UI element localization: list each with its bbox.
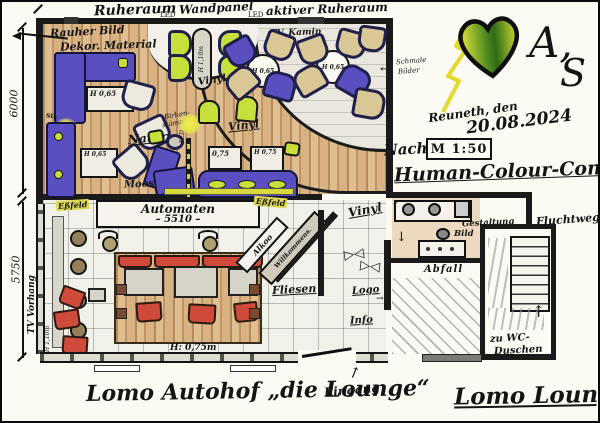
side-box: [249, 284, 260, 295]
left-arrow-icon: ←: [379, 64, 392, 75]
radiator: [230, 365, 276, 372]
sink-dot: [426, 247, 430, 251]
burner: [402, 203, 415, 216]
red-chair: [187, 303, 216, 324]
radiator: [94, 365, 140, 372]
wall-stair-left: [480, 224, 485, 360]
label-bar-height: H 1,10m: [45, 318, 51, 352]
up-arrow-icon: ↑: [390, 200, 401, 215]
stool: [202, 236, 218, 252]
heart-icon: [451, 10, 530, 87]
label-stl: StL: [46, 114, 57, 120]
faucet: [436, 228, 450, 240]
chair: [168, 54, 192, 82]
concept-title: Human-Colour-Concept: [394, 158, 600, 186]
label-aktiver-ruheraum: aktiver Ruheraum: [266, 1, 388, 17]
led-strip: [164, 188, 294, 195]
side-box: [249, 308, 260, 319]
label-wandpanel: Wandpanel: [179, 0, 254, 16]
down-arrow-icon: ↓: [396, 230, 407, 245]
dimension-5750: 5750: [11, 250, 22, 290]
scale-box: M 1:50: [426, 138, 492, 160]
sofa-l-side: [54, 52, 86, 124]
bench-cushion-red: [118, 255, 152, 268]
wall-stair-right: [551, 224, 556, 360]
wall-left-upper: [36, 18, 43, 204]
side-box: [116, 284, 127, 295]
label-fliesen: Fliesen: [272, 283, 317, 296]
label-abfall: Abfall: [424, 265, 463, 275]
label-vinyl-mid: Vinyl: [228, 118, 260, 132]
stool: [102, 236, 118, 252]
north-tick: [33, 4, 43, 14]
green-seat: [147, 129, 165, 146]
pillow: [54, 132, 63, 141]
dimension-6000: 6000: [9, 84, 20, 124]
staircase: [510, 236, 550, 312]
red-chair: [135, 301, 162, 323]
wall-service-left: [384, 240, 391, 310]
automat-width: – 5510 –: [156, 215, 201, 225]
label-info: Info: [350, 315, 373, 326]
stool: [70, 258, 87, 275]
bowtie-icon: ▷◁: [359, 259, 380, 274]
side-box: [116, 308, 127, 319]
pencil-shading: [488, 308, 544, 330]
plan-title-right: Lomo Lounge: [454, 382, 600, 408]
wall-right-stub: [526, 192, 532, 228]
scale-value: M 1:50: [431, 143, 488, 156]
small-arrow-icon: →: [376, 294, 384, 304]
arch-chair: [198, 100, 220, 124]
wall-service-mid: [390, 258, 482, 263]
pencil-shading: [488, 238, 508, 308]
label-bild: Bild: [454, 230, 474, 239]
wall-stair-top: [480, 224, 556, 229]
label-moos: Moos: [124, 179, 155, 191]
dining-table: [174, 266, 218, 298]
pillow: [118, 58, 128, 68]
label-tv-vorhang: TV Vorhang: [28, 242, 37, 334]
wall-service-bottom: [422, 354, 482, 362]
vending-counter: Automaten – 5510 –: [96, 200, 260, 228]
label-bilder: Bilder: [398, 67, 420, 76]
red-chair: [53, 308, 81, 330]
floorplan-sketch: Ruheraum LED Wandpanel LED aktiver Ruher…: [0, 0, 600, 423]
small-table: [88, 288, 106, 302]
high-table-height: H 1,10m: [199, 46, 205, 72]
wall-corridor-left: [318, 210, 324, 296]
table-h075: H 0,75: [250, 146, 284, 172]
label-wc-1: zu WC-: [490, 333, 530, 345]
label-dekor-material: Dekor. Material: [60, 38, 157, 52]
stool: [70, 230, 87, 247]
burner: [428, 203, 441, 216]
dimension-line-upper: [22, 28, 24, 194]
storage-hatch: [392, 278, 480, 354]
pillow: [54, 170, 63, 179]
annotation-arrowhead: [12, 32, 21, 40]
appliance: [454, 200, 470, 218]
green-seat: [283, 141, 301, 157]
dining-table: [124, 268, 164, 296]
initial-s: S: [560, 54, 586, 92]
label-schmale: Schmale: [396, 57, 427, 67]
sink-dot: [438, 247, 442, 251]
table-075: 0,75: [208, 146, 242, 170]
sink-dot: [450, 247, 454, 251]
